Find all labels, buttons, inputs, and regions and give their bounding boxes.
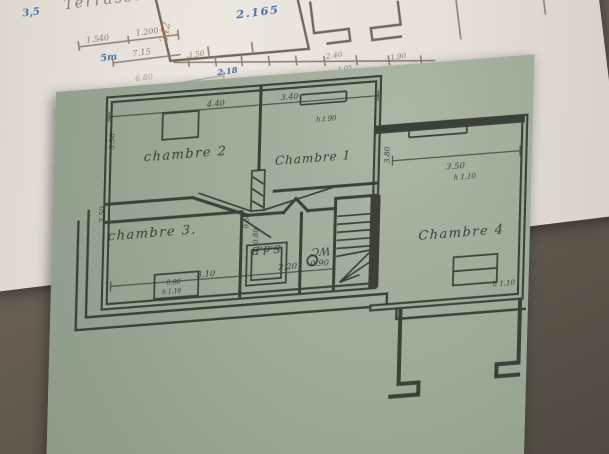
stair-side-wall xyxy=(368,195,380,288)
dim-ch3-window-h: h 1.18 xyxy=(162,288,181,297)
dim-sdb-width: 2.20 xyxy=(277,262,298,274)
dim-ch3-width: 3.10 xyxy=(196,269,216,281)
dim-ch4-sill: h 1.10 xyxy=(493,278,516,289)
wall-stub-below-left xyxy=(390,308,420,397)
dim-left-lower: 3.50 xyxy=(97,205,106,223)
dim-wc-width: 0.90 xyxy=(310,258,330,270)
dim-ch4-window-h: h 1.10 xyxy=(454,171,477,182)
dim-door-width: 0.80 xyxy=(251,227,260,244)
dim-hall-width: 0.50 xyxy=(241,212,250,229)
dim-ch4-window-w: 3.50 xyxy=(446,161,466,173)
window-chambre1 xyxy=(300,91,346,105)
dim-680: 6.80 xyxy=(135,72,154,83)
photo-of-floor-plans: Terrasse 3,5 2.165 242 1.540 1.200 7.15 … xyxy=(0,0,609,454)
dim-ch1-window: h.t 90 xyxy=(316,113,337,124)
dim-715: 7.15 xyxy=(132,47,152,59)
note-2165: 2.165 xyxy=(234,2,280,21)
chimney-chambre2 xyxy=(162,111,199,140)
dim-ch3-window-w: 0.90 xyxy=(166,278,181,287)
dim-240: 2.40 xyxy=(324,50,343,61)
dim-1200: 1.200 xyxy=(135,26,159,38)
dim-ch2-width: 4.40 xyxy=(206,99,225,109)
dim-ch4-depth: 3.80 xyxy=(382,146,391,164)
note-5m: 5m xyxy=(100,51,118,64)
green-plan-sheet: chambre 2 Chambre 1 chambre 3. Chambre 4… xyxy=(43,54,535,454)
note-218: 2.18 xyxy=(216,66,239,79)
dim-left-upper: 3.50 xyxy=(107,132,116,150)
room-label-chambre1: Chambre 1 xyxy=(275,148,351,168)
interior-walls xyxy=(104,79,379,307)
room-label-chambre4: Chambre 4 xyxy=(418,222,505,244)
door-leaf xyxy=(197,165,332,244)
room-label-chambre3: chambre 3. xyxy=(108,222,198,244)
upper-floor-plan: chambre 2 Chambre 1 chambre 3. Chambre 4… xyxy=(43,54,535,454)
staircase xyxy=(336,213,374,282)
room-label-wc: WC xyxy=(310,244,331,259)
wall-stub-left xyxy=(310,0,350,45)
note-242: 242 xyxy=(157,21,173,45)
note-3-5: 3,5 xyxy=(22,6,41,19)
dim-ch1-width: 3.40 xyxy=(281,92,299,102)
terrasse-label: Terrasse xyxy=(63,0,146,13)
room-label-chambre2: chambre 2 xyxy=(144,144,228,166)
wall-stub-right xyxy=(368,1,402,40)
